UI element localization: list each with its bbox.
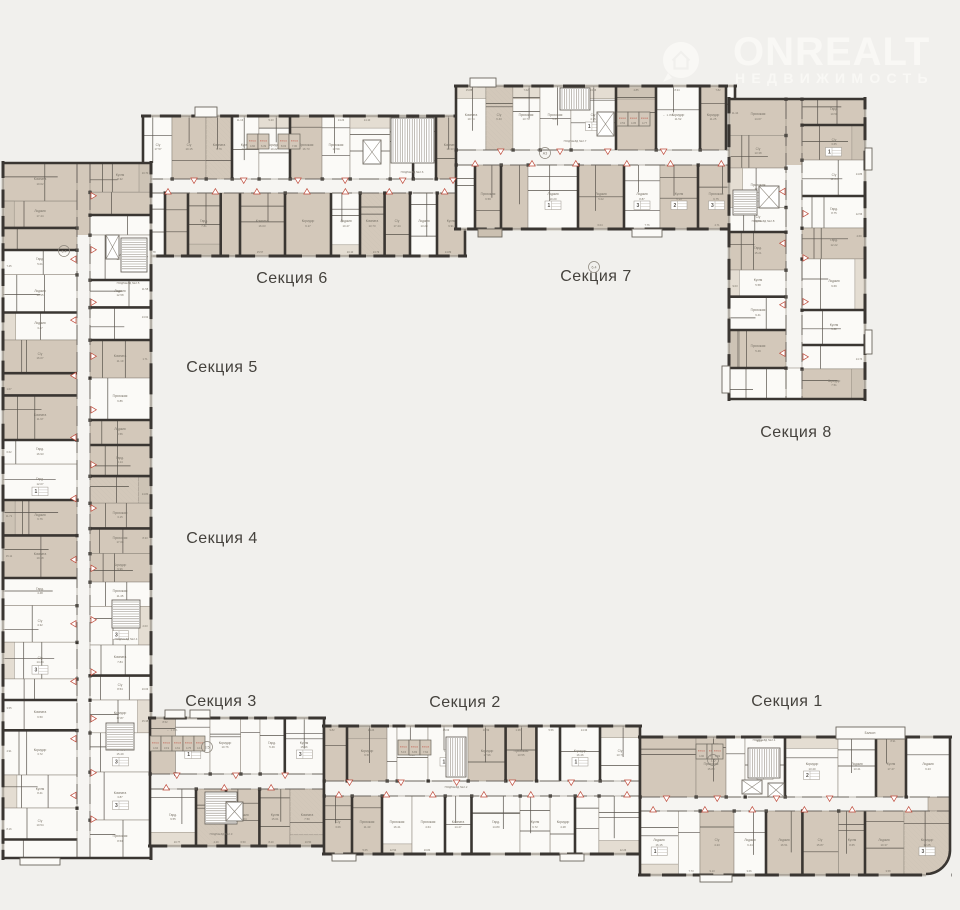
svg-text:9.82: 9.82 <box>329 728 335 732</box>
svg-text:14.47: 14.47 <box>455 825 462 829</box>
svg-text:10.15: 10.15 <box>186 147 193 151</box>
svg-text:7.51: 7.51 <box>831 383 837 387</box>
svg-text:Лоджия: Лоджия <box>418 219 430 223</box>
svg-text:КЗ/С01: КЗ/С01 <box>152 743 160 745</box>
svg-text:8.20: 8.20 <box>268 840 274 844</box>
svg-text:5.02: 5.02 <box>831 327 837 331</box>
svg-text:1: 1 <box>575 760 578 766</box>
svg-text:10.03: 10.03 <box>142 687 149 691</box>
svg-text:КЗ/С01: КЗ/С01 <box>714 751 722 753</box>
svg-text:10.76: 10.76 <box>222 745 229 749</box>
svg-text:4.94: 4.94 <box>153 746 159 750</box>
svg-text:3.15: 3.15 <box>117 515 123 519</box>
svg-text:6.62: 6.62 <box>6 450 12 454</box>
svg-text:16.93: 16.93 <box>37 452 44 456</box>
svg-text:3: 3 <box>35 668 38 674</box>
svg-text:16.15: 16.15 <box>656 843 663 847</box>
svg-text:КЗ/С01: КЗ/С01 <box>400 747 408 749</box>
svg-text:КЗ/С03: КЗ/С03 <box>641 118 649 120</box>
svg-text:16.73: 16.73 <box>303 147 310 151</box>
svg-text:14.74: 14.74 <box>856 357 863 361</box>
svg-text:Гард.: Гард. <box>830 107 838 111</box>
svg-text:ONREALT: ONREALT <box>733 30 930 74</box>
svg-text:12.04: 12.04 <box>831 177 838 181</box>
svg-text:Гард.: Гард. <box>36 257 44 261</box>
svg-text:Балкон: Балкон <box>865 731 876 735</box>
svg-text:Секция 7: Секция 7 <box>560 268 632 285</box>
svg-text:7.73: 7.73 <box>688 869 694 873</box>
svg-text:14.84: 14.84 <box>142 492 149 496</box>
svg-text:14.23: 14.23 <box>338 118 345 122</box>
svg-text:17.44: 17.44 <box>394 224 401 228</box>
svg-text:16.03: 16.03 <box>259 224 266 228</box>
svg-text:Секция 8: Секция 8 <box>760 424 832 441</box>
svg-text:ПОДЪЕЗД №2.6: ПОДЪЕЗД №2.6 <box>401 170 424 174</box>
svg-text:6.50: 6.50 <box>240 840 246 844</box>
svg-text:Лоджия: Лоджия <box>34 209 46 213</box>
svg-text:Гард.: Гард. <box>754 246 762 250</box>
svg-text:КЗ/С02: КЗ/С02 <box>630 118 638 120</box>
svg-text:1.07: 1.07 <box>6 387 12 391</box>
svg-text:6.72: 6.72 <box>532 825 538 829</box>
svg-text:Комната: Комната <box>452 820 465 824</box>
svg-text:11.25: 11.25 <box>710 117 717 121</box>
svg-text:Кухня: Кухня <box>531 820 540 824</box>
svg-text:Лоджия: Лоджия <box>878 838 890 842</box>
svg-text:5.05: 5.05 <box>552 117 558 121</box>
svg-text:8.65: 8.65 <box>849 843 855 847</box>
svg-text:КЗ/С02: КЗ/С02 <box>291 141 299 143</box>
svg-text:2.03: 2.03 <box>142 624 148 628</box>
svg-text:16.41: 16.41 <box>394 825 401 829</box>
svg-text:11.19: 11.19 <box>117 359 124 363</box>
svg-text:7.50: 7.50 <box>304 817 310 821</box>
svg-text:16.07: 16.07 <box>37 356 44 360</box>
svg-text:2: 2 <box>674 203 677 209</box>
svg-text:4.91: 4.91 <box>6 749 12 753</box>
svg-text:КЗ/С01: КЗ/С01 <box>698 751 706 753</box>
svg-text:4.23: 4.23 <box>714 843 720 847</box>
svg-text:14.89: 14.89 <box>445 250 452 254</box>
svg-text:4.85: 4.85 <box>633 88 639 92</box>
svg-text:← 1.0%: ← 1.0% <box>663 113 674 117</box>
svg-text:10.54: 10.54 <box>37 823 44 827</box>
svg-text:ПОДЪЕЗД №2.2: ПОДЪЕЗД №2.2 <box>445 785 468 789</box>
svg-text:НЕДВИЖИМОСТЬ: НЕДВИЖИМОСТЬ <box>735 70 934 86</box>
svg-text:Комната: Комната <box>256 219 269 223</box>
svg-text:3: 3 <box>299 752 302 758</box>
svg-text:12.59: 12.59 <box>333 147 340 151</box>
svg-text:Прихожая: Прихожая <box>113 394 128 398</box>
svg-text:11.13: 11.13 <box>237 118 244 122</box>
svg-text:5.02: 5.02 <box>598 197 604 201</box>
svg-text:Секция 1: Секция 1 <box>751 693 823 710</box>
svg-text:11.45: 11.45 <box>117 594 124 598</box>
svg-text:12.07: 12.07 <box>37 482 44 486</box>
svg-text:1: 1 <box>654 849 657 855</box>
svg-text:12.25: 12.25 <box>924 843 931 847</box>
svg-text:10.59: 10.59 <box>483 728 490 732</box>
svg-text:Коридор: Коридор <box>921 838 934 842</box>
svg-text:Прихожая: Прихожая <box>751 112 766 116</box>
svg-text:3.47: 3.47 <box>37 326 43 330</box>
svg-text:Лоджия: Лоджия <box>828 279 840 283</box>
svg-text:Прихожая: Прихожая <box>390 820 405 824</box>
svg-text:8.87: 8.87 <box>639 197 645 201</box>
svg-text:Прихожая: Прихожая <box>751 344 766 348</box>
svg-text:6.44: 6.44 <box>747 843 753 847</box>
svg-text:15.88: 15.88 <box>466 88 473 92</box>
svg-text:Секция 6: Секция 6 <box>256 270 328 287</box>
svg-text:15.16: 15.16 <box>301 745 308 749</box>
svg-text:10.10: 10.10 <box>347 250 354 254</box>
svg-text:6.17: 6.17 <box>305 224 311 228</box>
svg-text:17.47: 17.47 <box>888 767 895 771</box>
svg-text:Гард.: Гард. <box>200 219 208 223</box>
svg-text:13.15: 13.15 <box>37 293 44 297</box>
svg-text:6.86: 6.86 <box>117 399 123 403</box>
svg-text:3.53: 3.53 <box>620 121 626 125</box>
svg-text:12.26: 12.26 <box>620 848 627 852</box>
svg-text:12.56: 12.56 <box>856 212 863 216</box>
svg-text:С/у: С/у <box>336 820 341 824</box>
svg-text:4.61: 4.61 <box>175 746 181 750</box>
svg-text:14.86: 14.86 <box>856 172 863 176</box>
svg-text:17.06: 17.06 <box>117 540 124 544</box>
svg-text:3: 3 <box>115 803 118 809</box>
svg-text:4.75: 4.75 <box>590 117 596 121</box>
svg-text:9.91: 9.91 <box>448 224 454 228</box>
svg-text:С/у: С/у <box>715 838 720 842</box>
svg-text:16.51: 16.51 <box>781 843 788 847</box>
svg-text:Лоджия: Лоджия <box>851 762 863 766</box>
svg-text:10.74: 10.74 <box>468 117 475 121</box>
svg-text:Лоджия: Лоджия <box>114 427 126 431</box>
svg-text:10.50: 10.50 <box>831 112 838 116</box>
svg-text:1: 1 <box>548 203 551 209</box>
svg-text:10.37: 10.37 <box>881 843 888 847</box>
svg-text:Лоджия: Лоджия <box>653 838 665 842</box>
svg-text:15.63: 15.63 <box>443 728 450 732</box>
svg-text:Прихожая: Прихожая <box>113 589 128 593</box>
svg-text:5.15: 5.15 <box>401 750 407 754</box>
svg-text:Лоджия: Лоджия <box>340 219 352 223</box>
svg-text:Кухня: Кухня <box>848 838 857 842</box>
svg-text:1.71: 1.71 <box>142 357 148 361</box>
svg-text:6.23: 6.23 <box>925 767 931 771</box>
svg-text:КЗ/С03: КЗ/С03 <box>422 747 430 749</box>
svg-text:13.33: 13.33 <box>447 147 454 151</box>
svg-text:6.43: 6.43 <box>496 117 502 121</box>
svg-text:2: 2 <box>806 773 809 779</box>
svg-text:7.62: 7.62 <box>423 750 429 754</box>
svg-text:8.75: 8.75 <box>831 211 837 215</box>
svg-text:ПОДЪЕЗД №2.8: ПОДЪЕЗД №2.8 <box>752 219 775 223</box>
svg-text:17.96: 17.96 <box>484 753 491 757</box>
svg-text:4.90: 4.90 <box>699 754 705 758</box>
svg-text:9.41: 9.41 <box>755 313 761 317</box>
svg-text:8.91: 8.91 <box>890 739 896 743</box>
svg-text:10.62: 10.62 <box>37 182 44 186</box>
svg-text:10.50: 10.50 <box>305 840 312 844</box>
svg-text:Лоджия: Лоджия <box>547 192 559 196</box>
svg-text:11.43: 11.43 <box>364 825 371 829</box>
svg-text:КЗ/С02: КЗ/С02 <box>411 747 419 749</box>
svg-text:14.44: 14.44 <box>37 660 44 664</box>
svg-text:ПОДЪЕЗД №2.4: ПОДЪЕЗД №2.4 <box>115 637 138 641</box>
svg-text:17.87: 17.87 <box>117 716 124 720</box>
svg-text:Прихожая: Прихожая <box>113 834 128 838</box>
svg-text:4.60: 4.60 <box>856 234 862 238</box>
svg-text:Комната: Комната <box>114 655 127 659</box>
svg-text:4.48: 4.48 <box>37 591 43 595</box>
svg-text:КЗ/С03: КЗ/С03 <box>174 743 182 745</box>
svg-text:14.67: 14.67 <box>755 117 762 121</box>
svg-text:8.32: 8.32 <box>117 177 123 181</box>
svg-text:1.5: 1.5 <box>711 759 716 763</box>
svg-text:13.73: 13.73 <box>369 224 376 228</box>
svg-text:5.65: 5.65 <box>362 848 368 852</box>
svg-text:3: 3 <box>922 849 925 855</box>
svg-text:13.38: 13.38 <box>755 151 762 155</box>
svg-text:КЗ/С01: КЗ/С01 <box>619 118 627 120</box>
svg-text:Кухня: Кухня <box>754 278 763 282</box>
svg-text:14.10: 14.10 <box>364 118 371 122</box>
svg-text:9.13: 9.13 <box>709 869 715 873</box>
svg-text:Комната: Комната <box>366 219 379 223</box>
svg-text:10.22: 10.22 <box>271 147 278 151</box>
svg-text:1: 1 <box>187 752 190 758</box>
svg-text:10.77: 10.77 <box>174 840 181 844</box>
svg-text:10.20: 10.20 <box>550 197 557 201</box>
svg-text:9.69: 9.69 <box>831 284 837 288</box>
svg-text:13.73: 13.73 <box>523 117 530 121</box>
svg-text:4.64: 4.64 <box>425 825 431 829</box>
svg-text:7.76: 7.76 <box>644 223 650 227</box>
svg-text:9.96: 9.96 <box>117 567 123 571</box>
svg-text:3.65: 3.65 <box>831 142 837 146</box>
svg-text:13.28: 13.28 <box>421 224 428 228</box>
svg-text:7.00: 7.00 <box>292 144 298 148</box>
svg-text:3.58: 3.58 <box>885 869 891 873</box>
svg-text:3.14: 3.14 <box>117 460 123 464</box>
svg-text:4.60: 4.60 <box>250 144 256 148</box>
svg-text:4.77: 4.77 <box>642 121 648 125</box>
svg-text:15.11: 15.11 <box>6 554 13 558</box>
svg-text:Кухня: Кухня <box>675 192 684 196</box>
svg-text:15.57: 15.57 <box>257 250 264 254</box>
svg-text:А3: А3 <box>543 152 547 156</box>
svg-text:10.47: 10.47 <box>343 224 350 228</box>
svg-text:Лоджия: Лоджия <box>778 838 790 842</box>
svg-text:6.76: 6.76 <box>37 517 43 521</box>
svg-text:5.56: 5.56 <box>548 728 554 732</box>
svg-text:14.33: 14.33 <box>581 728 588 732</box>
svg-text:3.55: 3.55 <box>6 706 12 710</box>
svg-text:Лоджия: Лоджия <box>744 838 756 842</box>
svg-text:11.58: 11.58 <box>142 287 149 291</box>
svg-text:3.87: 3.87 <box>117 795 123 799</box>
svg-text:Прихожая: Прихожая <box>360 820 375 824</box>
svg-text:Лоджия: Лоджия <box>636 192 648 196</box>
svg-text:6.56: 6.56 <box>117 432 123 436</box>
svg-text:7.81: 7.81 <box>201 224 207 228</box>
svg-text:6.75: 6.75 <box>713 197 719 201</box>
svg-text:3.72: 3.72 <box>37 752 43 756</box>
svg-text:8.16: 8.16 <box>6 827 12 831</box>
svg-text:ПОДЪЕЗД №2.7: ПОДЪЕЗД №2.7 <box>564 139 587 143</box>
svg-text:8.03: 8.03 <box>281 144 287 148</box>
svg-text:ПОДЪЕЗД №2.1: ПОДЪЕЗД №2.1 <box>753 738 776 742</box>
svg-text:Секция 4: Секция 4 <box>186 530 258 547</box>
svg-text:3: 3 <box>711 203 714 209</box>
svg-text:6.4: 6.4 <box>62 250 67 254</box>
svg-text:5.39: 5.39 <box>676 197 682 201</box>
svg-text:Коридор: Коридор <box>806 762 819 766</box>
svg-text:13.46: 13.46 <box>590 88 597 92</box>
svg-text:5.49: 5.49 <box>269 745 275 749</box>
svg-text:13.79: 13.79 <box>373 250 380 254</box>
svg-text:1: 1 <box>35 489 38 495</box>
svg-text:7.62: 7.62 <box>523 88 529 92</box>
svg-text:11.52: 11.52 <box>675 117 682 121</box>
svg-text:15.61: 15.61 <box>272 817 279 821</box>
svg-text:Коридор: Коридор <box>114 711 127 715</box>
svg-text:14.80: 14.80 <box>493 825 500 829</box>
svg-text:3.5: 3.5 <box>205 746 210 750</box>
svg-text:10.70: 10.70 <box>142 171 149 175</box>
svg-text:13.40: 13.40 <box>809 767 816 771</box>
svg-text:Лоджия: Лоджия <box>595 192 607 196</box>
svg-text:7.45: 7.45 <box>6 264 12 268</box>
svg-text:6.39: 6.39 <box>261 144 267 148</box>
svg-text:15.21: 15.21 <box>755 251 762 255</box>
svg-text:С/у: С/у <box>395 219 400 223</box>
svg-text:← 1.0%: ← 1.0% <box>167 728 178 732</box>
svg-text:16.46: 16.46 <box>577 753 584 757</box>
svg-text:13.41: 13.41 <box>854 767 861 771</box>
svg-text:Гард.: Гард. <box>830 238 838 242</box>
svg-text:4.29: 4.29 <box>213 840 219 844</box>
svg-text:11.97: 11.97 <box>37 417 44 421</box>
svg-text:10.48: 10.48 <box>37 556 44 560</box>
svg-text:8.41: 8.41 <box>37 791 43 795</box>
svg-text:11.44: 11.44 <box>732 111 739 115</box>
svg-text:13.73: 13.73 <box>617 753 624 757</box>
svg-text:8.52: 8.52 <box>162 720 168 724</box>
svg-text:1: 1 <box>828 150 831 156</box>
svg-text:Прихожая: Прихожая <box>481 192 496 196</box>
svg-text:12.22: 12.22 <box>831 243 838 247</box>
svg-text:12.58: 12.58 <box>117 293 124 297</box>
svg-text:3.06: 3.06 <box>335 825 341 829</box>
svg-text:КЗ/С02: КЗ/С02 <box>260 141 268 143</box>
svg-text:Коридор: Коридор <box>557 820 570 824</box>
svg-text:15.38: 15.38 <box>142 719 149 723</box>
svg-text:Комната: Комната <box>114 354 127 358</box>
svg-text:13.62: 13.62 <box>142 315 149 319</box>
svg-text:14.24: 14.24 <box>368 728 375 732</box>
svg-text:5.01: 5.01 <box>37 262 43 266</box>
svg-text:3.19: 3.19 <box>164 746 170 750</box>
svg-text:ПОДЪЕЗД №2.5: ПОДЪЕЗД №2.5 <box>117 281 140 285</box>
svg-text:Гард.: Гард. <box>492 820 500 824</box>
svg-text:5.23: 5.23 <box>268 118 274 122</box>
svg-text:15.87: 15.87 <box>817 843 824 847</box>
svg-text:6.50: 6.50 <box>37 715 43 719</box>
svg-text:15.80: 15.80 <box>708 767 715 771</box>
svg-text:КЗ/С01: КЗ/С01 <box>280 141 288 143</box>
svg-text:КЗ/С01: КЗ/С01 <box>249 141 257 143</box>
svg-text:6.83: 6.83 <box>412 750 418 754</box>
svg-text:9.03: 9.03 <box>732 284 738 288</box>
svg-text:Гард.: Гард. <box>36 477 44 481</box>
svg-text:С/у: С/у <box>818 838 823 842</box>
svg-text:Кухня: Кухня <box>887 762 896 766</box>
svg-text:6.04: 6.04 <box>597 223 603 227</box>
svg-text:7.84: 7.84 <box>117 660 123 664</box>
svg-text:Секция 3: Секция 3 <box>185 693 257 710</box>
svg-text:КЗ/С04: КЗ/С04 <box>185 743 193 745</box>
svg-text:4.32: 4.32 <box>37 623 43 627</box>
svg-text:12.54: 12.54 <box>390 848 397 852</box>
svg-text:5.58: 5.58 <box>755 283 761 287</box>
svg-text:3: 3 <box>637 203 640 209</box>
svg-text:17.57: 17.57 <box>155 147 162 151</box>
svg-text:6.79: 6.79 <box>216 147 222 151</box>
svg-text:8.53: 8.53 <box>117 839 123 843</box>
svg-text:3: 3 <box>115 759 118 765</box>
svg-text:4.71: 4.71 <box>714 223 720 227</box>
svg-text:4.75: 4.75 <box>186 746 192 750</box>
svg-text:Кухня: Кухня <box>447 219 456 223</box>
svg-text:5.49: 5.49 <box>755 349 761 353</box>
svg-text:9.55: 9.55 <box>170 817 176 821</box>
svg-text:1: 1 <box>443 760 446 766</box>
svg-text:Гард.: Гард. <box>36 447 44 451</box>
svg-text:ПОДЪЕЗД №2.3: ПОДЪЕЗД №2.3 <box>210 832 233 836</box>
svg-text:11.71: 11.71 <box>6 514 13 518</box>
svg-text:8.34: 8.34 <box>674 88 680 92</box>
svg-text:8.33: 8.33 <box>142 536 148 540</box>
svg-text:6.59: 6.59 <box>364 753 370 757</box>
svg-text:Прихожая: Прихожая <box>709 192 724 196</box>
svg-text:Секция 5: Секция 5 <box>186 359 258 376</box>
svg-text:6.59: 6.59 <box>485 197 491 201</box>
svg-text:Прихожая: Прихожая <box>421 820 436 824</box>
svg-text:Комната: Комната <box>34 177 47 181</box>
svg-text:Лоджия: Лоджия <box>34 321 46 325</box>
svg-text:15.49: 15.49 <box>117 752 124 756</box>
svg-text:Прихожая: Прихожая <box>751 308 766 312</box>
svg-text:3.66: 3.66 <box>746 869 752 873</box>
svg-text:1: 1 <box>588 124 591 130</box>
svg-text:4.28: 4.28 <box>560 825 566 829</box>
svg-text:1.38: 1.38 <box>515 728 521 732</box>
svg-text:7.82: 7.82 <box>715 88 721 92</box>
svg-text:10.84: 10.84 <box>424 848 431 852</box>
svg-text:Секция 2: Секция 2 <box>429 694 501 711</box>
svg-text:Коридор: Коридор <box>302 219 315 223</box>
svg-text:8.54: 8.54 <box>117 687 123 691</box>
svg-text:Комната: Комната <box>34 710 47 714</box>
svg-text:КЗ/С02: КЗ/С02 <box>163 743 171 745</box>
svg-text:4.05: 4.05 <box>631 121 637 125</box>
svg-text:13.55: 13.55 <box>518 753 525 757</box>
svg-text:17.44: 17.44 <box>37 214 44 218</box>
svg-text:Лоджия: Лоджия <box>922 762 934 766</box>
